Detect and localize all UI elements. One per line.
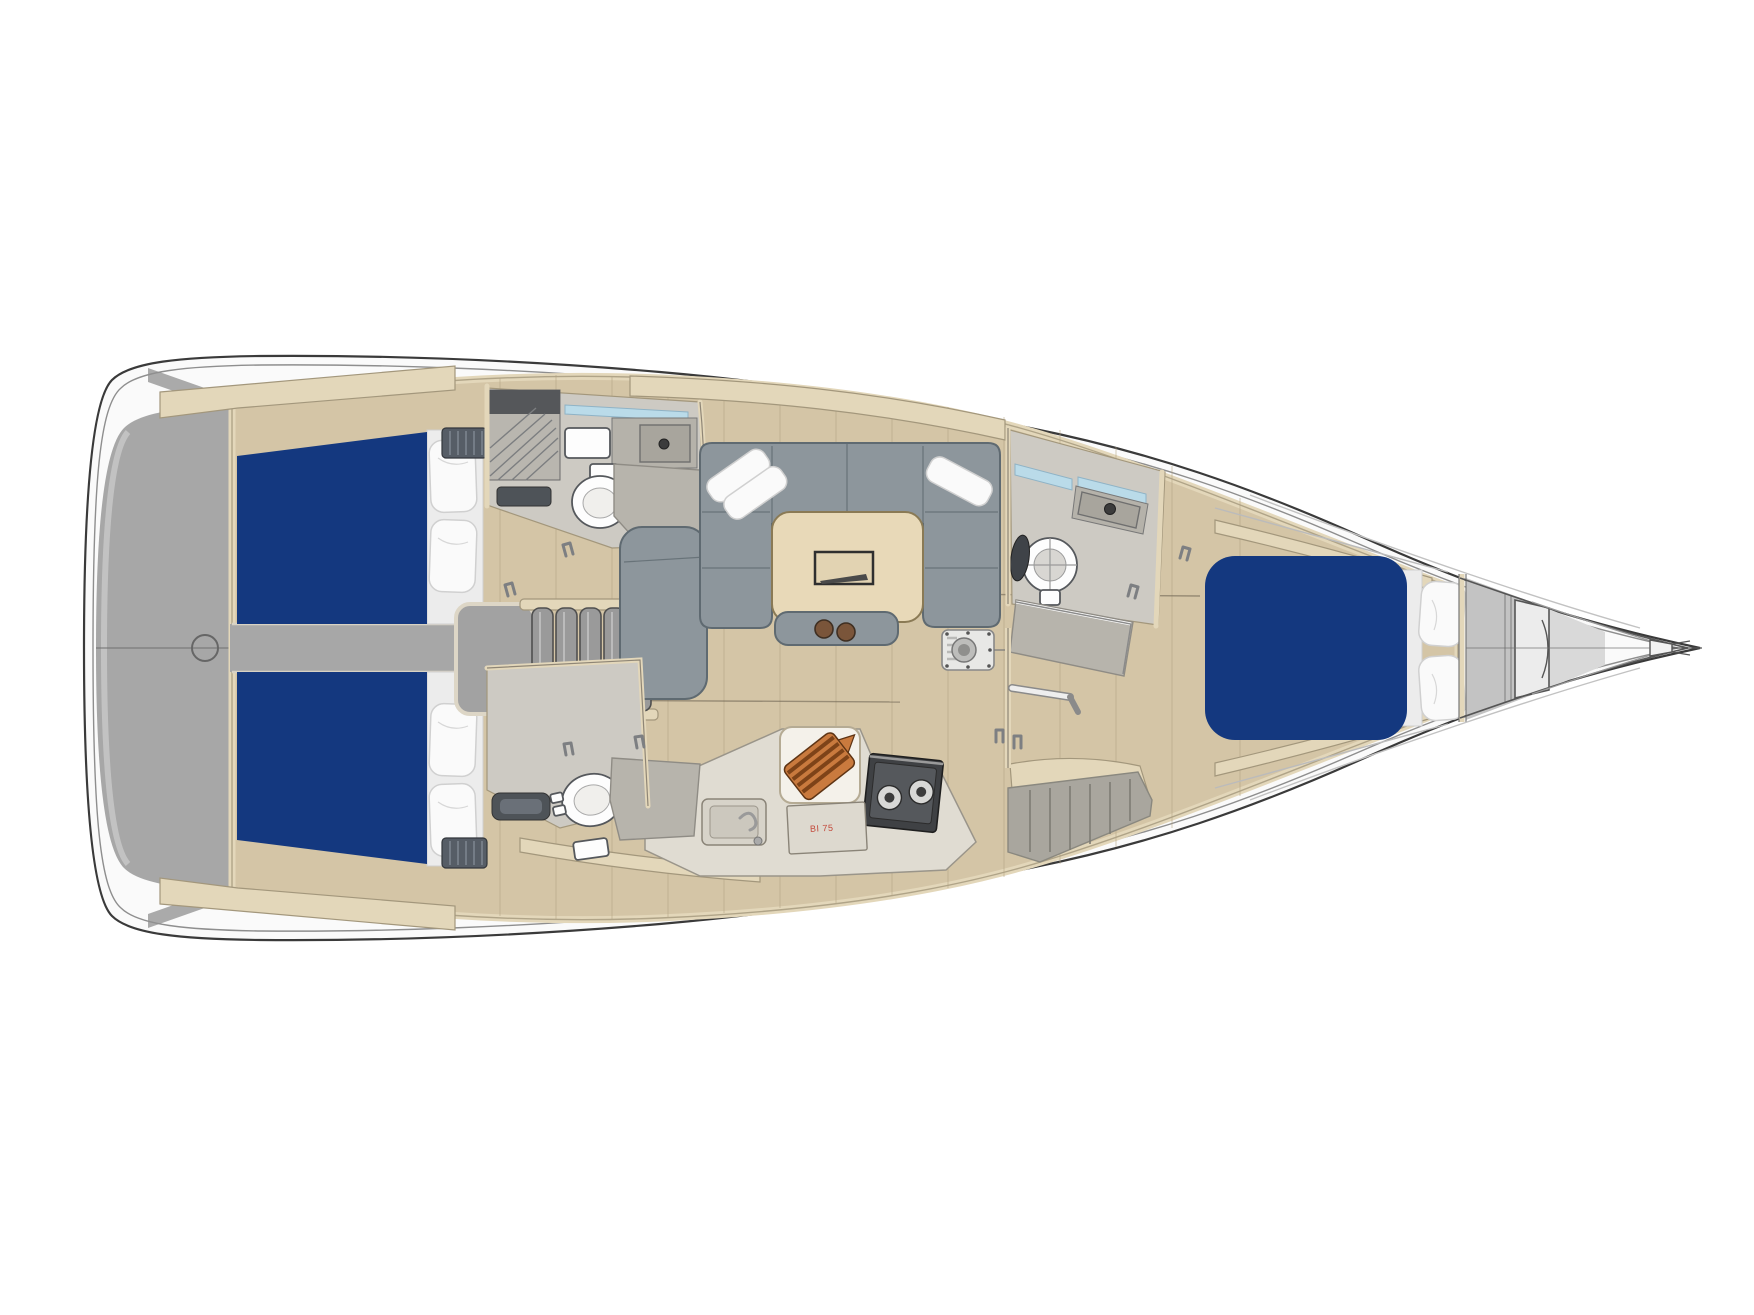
- boat-plan-canvas: BI 75: [0, 0, 1754, 1315]
- aft-top-mattress: [237, 432, 427, 624]
- salon-bench: [775, 612, 898, 645]
- aft-bottom-mattress: [237, 672, 427, 864]
- head-top-sink: [612, 418, 697, 468]
- galley-cuttingboard: [780, 721, 869, 803]
- boat-plan: BI 75: [0, 0, 1754, 1315]
- galley-sink: [702, 799, 766, 845]
- fridge-label: BI 75: [810, 823, 834, 834]
- anchor-locker: [1515, 600, 1549, 698]
- head-top-bench: [565, 428, 610, 458]
- head-top-hatch: [497, 487, 551, 506]
- galley-stove: [862, 753, 943, 832]
- aft-bottom-vent: [442, 838, 487, 868]
- head-top-locker: [487, 390, 560, 480]
- aft-top-pillow-2: [429, 519, 477, 593]
- corridor-floor: [230, 624, 462, 672]
- head-bottom-shower: [610, 758, 700, 840]
- head-bottom-bench: [573, 838, 609, 861]
- bow-section: [1459, 574, 1702, 722]
- aft-corridor: [230, 624, 462, 672]
- galley-fridge: BI 75: [787, 802, 867, 854]
- aft-top-vent: [442, 428, 487, 458]
- fwd-berth-mattress: [1205, 556, 1407, 740]
